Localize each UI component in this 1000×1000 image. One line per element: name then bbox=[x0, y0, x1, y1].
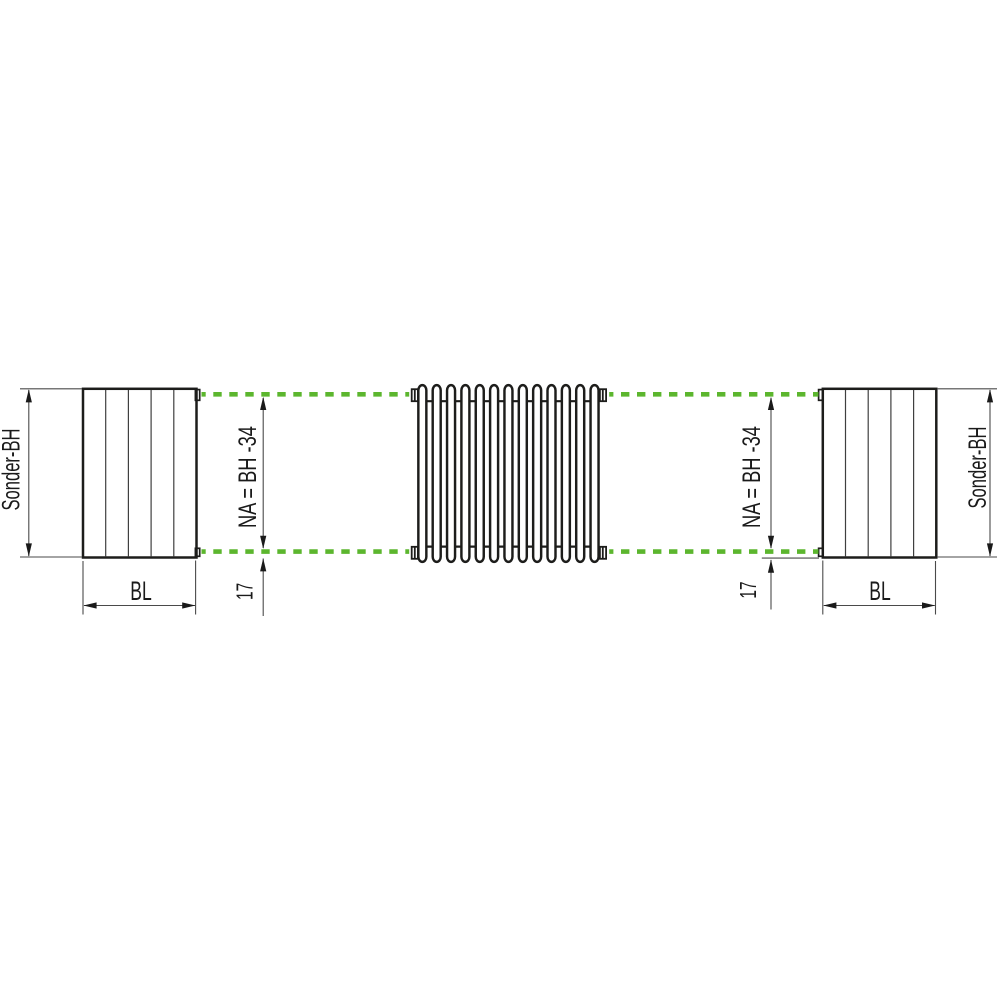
svg-text:Sonder-BH: Sonder-BH bbox=[0, 429, 25, 511]
svg-text:BL: BL bbox=[869, 575, 890, 606]
svg-text:17: 17 bbox=[232, 583, 258, 600]
svg-text:17: 17 bbox=[736, 581, 762, 598]
svg-text:NA = BH -34: NA = BH -34 bbox=[233, 426, 262, 528]
svg-text:Sonder-BH: Sonder-BH bbox=[965, 427, 992, 509]
svg-text:NA = BH -34: NA = BH -34 bbox=[737, 426, 766, 528]
svg-text:BL: BL bbox=[130, 575, 151, 606]
